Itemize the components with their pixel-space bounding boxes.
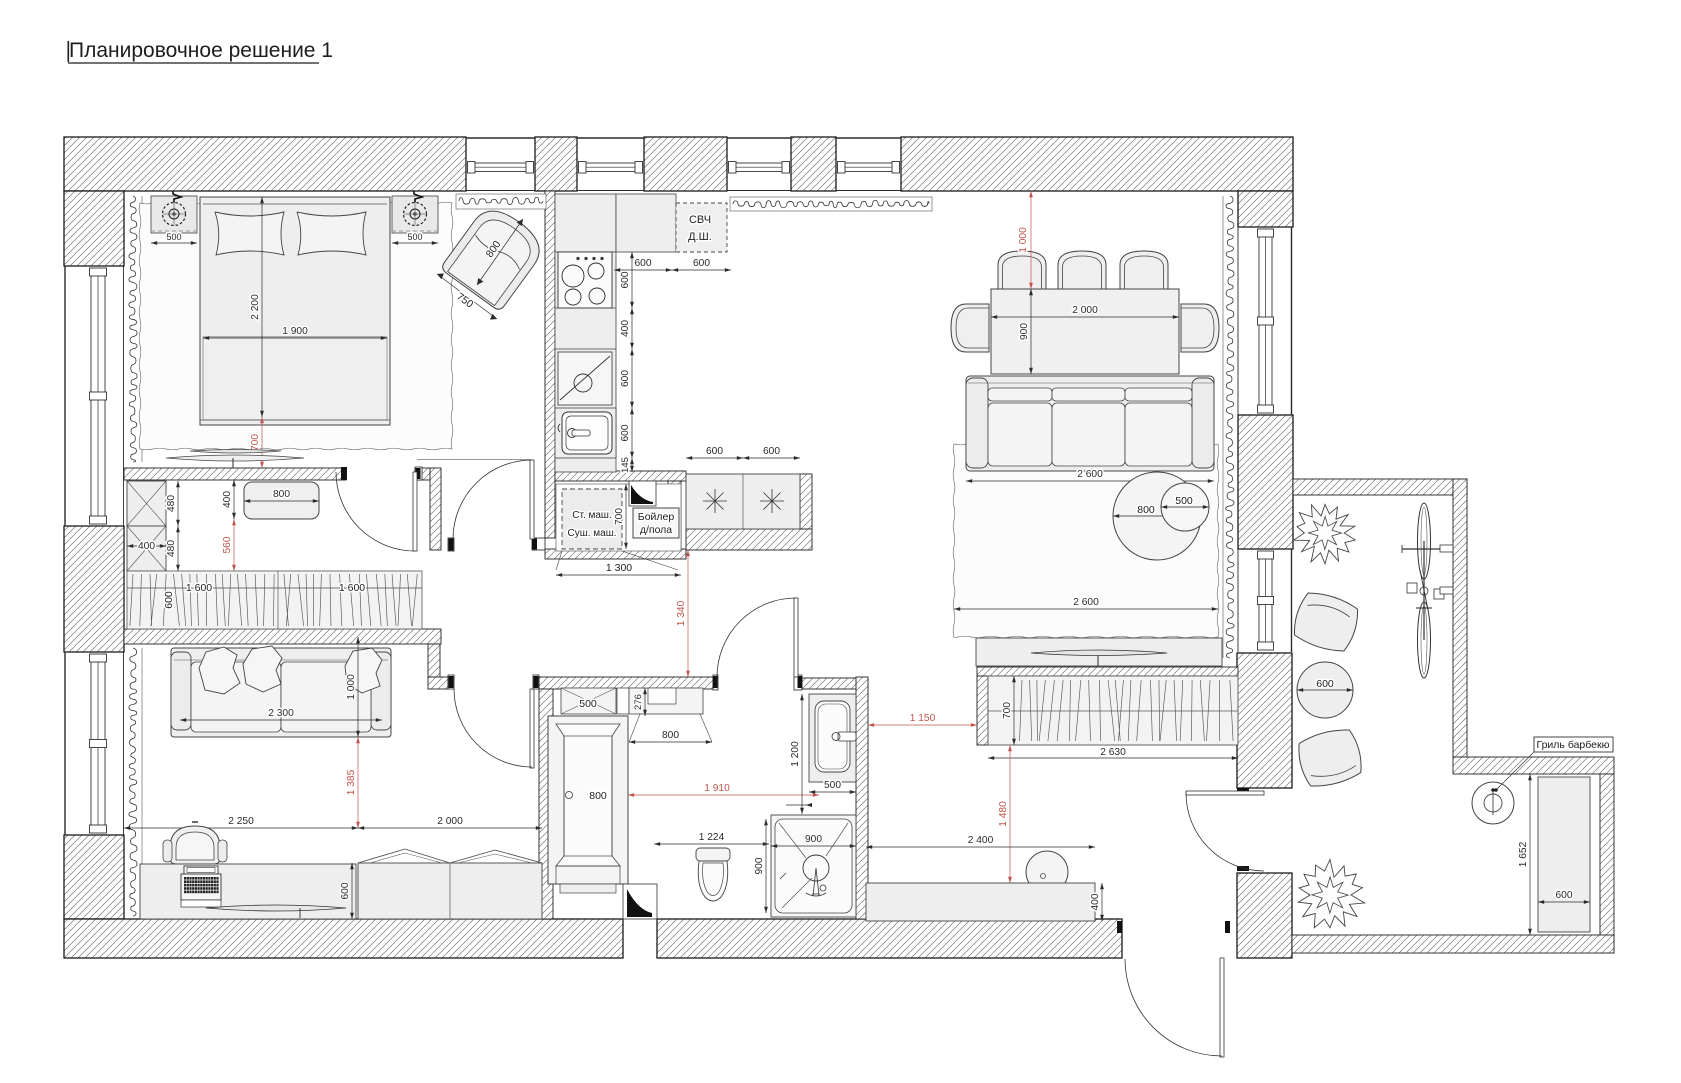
svg-text:1 600: 1 600 bbox=[339, 582, 365, 594]
svg-text:500: 500 bbox=[1175, 495, 1193, 507]
svg-text:1 340: 1 340 bbox=[676, 600, 687, 626]
svg-text:600: 600 bbox=[1316, 678, 1334, 690]
svg-text:500: 500 bbox=[407, 232, 422, 242]
svg-text:400: 400 bbox=[222, 491, 233, 508]
svg-text:2 600: 2 600 bbox=[1077, 469, 1103, 480]
svg-text:2 400: 2 400 bbox=[968, 835, 994, 846]
svg-text:480: 480 bbox=[166, 495, 177, 512]
svg-text:2 250: 2 250 bbox=[228, 816, 254, 827]
svg-text:Ст. маш.: Ст. маш. bbox=[572, 510, 612, 521]
svg-text:800: 800 bbox=[273, 489, 290, 500]
svg-text:900: 900 bbox=[1019, 323, 1030, 340]
svg-text:1 224: 1 224 bbox=[699, 832, 725, 843]
svg-text:1 652: 1 652 bbox=[1518, 841, 1529, 867]
svg-text:700: 700 bbox=[1002, 702, 1013, 719]
svg-text:400: 400 bbox=[1090, 893, 1101, 910]
svg-text:1 000: 1 000 bbox=[1018, 227, 1029, 253]
svg-text:Бойлер: Бойлер bbox=[638, 511, 675, 523]
svg-text:400: 400 bbox=[138, 541, 155, 552]
svg-text:д/пола: д/пола bbox=[640, 524, 672, 536]
svg-text:600: 600 bbox=[706, 446, 723, 457]
svg-text:480: 480 bbox=[166, 540, 177, 557]
svg-text:1 900: 1 900 bbox=[282, 326, 308, 337]
svg-text:2 000: 2 000 bbox=[1072, 305, 1098, 316]
svg-text:1 910: 1 910 bbox=[704, 783, 730, 794]
svg-text:560: 560 bbox=[222, 536, 233, 553]
svg-text:1 385: 1 385 bbox=[346, 769, 357, 795]
svg-text:2 630: 2 630 bbox=[1100, 747, 1126, 758]
svg-text:1 200: 1 200 bbox=[790, 741, 801, 767]
svg-text:900: 900 bbox=[754, 857, 765, 874]
svg-text:800: 800 bbox=[589, 790, 607, 802]
svg-text:145: 145 bbox=[620, 457, 631, 473]
svg-text:Гриль барбекю: Гриль барбекю bbox=[1537, 739, 1610, 751]
svg-text:2 300: 2 300 bbox=[268, 708, 294, 719]
svg-text:600: 600 bbox=[163, 591, 175, 609]
svg-text:1 480: 1 480 bbox=[998, 801, 1009, 827]
svg-text:Суш. маш.: Суш. маш. bbox=[567, 528, 616, 539]
svg-text:2 600: 2 600 bbox=[1073, 597, 1099, 608]
svg-text:1 150: 1 150 bbox=[910, 713, 936, 724]
svg-text:600: 600 bbox=[340, 882, 351, 899]
svg-text:500: 500 bbox=[824, 780, 841, 791]
svg-text:1 000: 1 000 bbox=[346, 674, 357, 700]
svg-text:600: 600 bbox=[620, 271, 631, 288]
svg-text:900: 900 bbox=[805, 834, 822, 845]
svg-text:600: 600 bbox=[1556, 890, 1573, 901]
svg-text:600: 600 bbox=[620, 370, 631, 387]
svg-text:276: 276 bbox=[633, 694, 644, 710]
svg-text:600: 600 bbox=[635, 258, 652, 269]
svg-text:1 600: 1 600 bbox=[186, 582, 212, 594]
svg-text:800: 800 bbox=[662, 730, 679, 741]
svg-text:600: 600 bbox=[620, 424, 631, 441]
svg-text:2 000: 2 000 bbox=[437, 816, 463, 827]
svg-text:1 300: 1 300 bbox=[606, 562, 632, 574]
svg-text:500: 500 bbox=[166, 232, 181, 242]
svg-text:700: 700 bbox=[614, 508, 625, 525]
svg-text:500: 500 bbox=[579, 698, 597, 710]
svg-text:700: 700 bbox=[250, 434, 261, 451]
svg-text:600: 600 bbox=[693, 258, 710, 269]
svg-text:800: 800 bbox=[1137, 504, 1155, 516]
svg-text:400: 400 bbox=[620, 320, 631, 337]
svg-text:Планировочное решение 1: Планировочное решение 1 bbox=[69, 39, 333, 62]
svg-text:Д.Ш.: Д.Ш. bbox=[688, 231, 712, 243]
svg-text:СВЧ: СВЧ bbox=[689, 214, 711, 226]
svg-text:2 200: 2 200 bbox=[250, 294, 261, 320]
svg-text:600: 600 bbox=[763, 446, 780, 457]
